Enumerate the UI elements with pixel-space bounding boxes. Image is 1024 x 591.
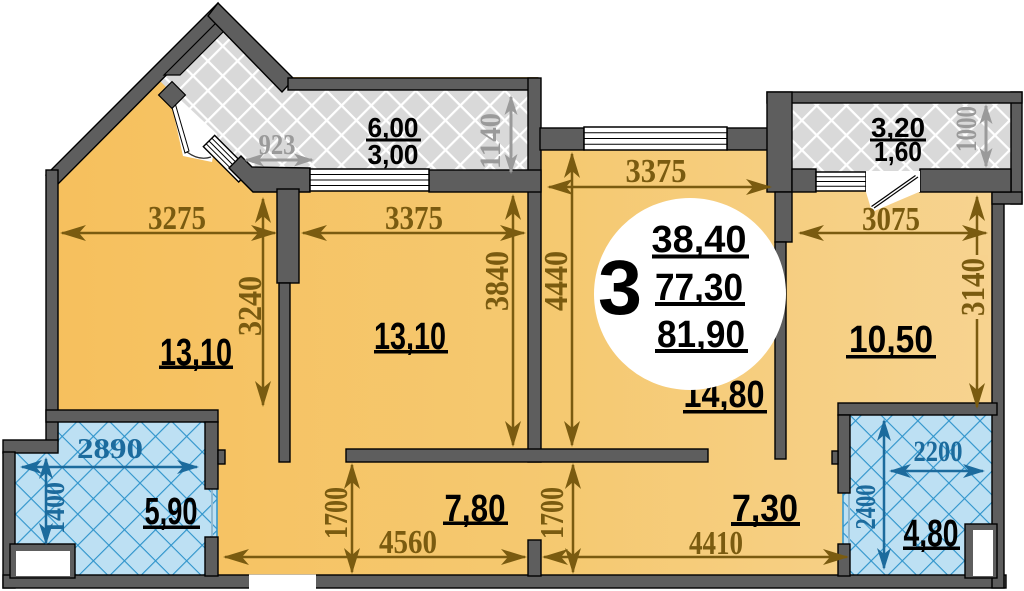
svg-text:3275: 3275 xyxy=(148,200,206,237)
svg-text:4560: 4560 xyxy=(379,524,437,561)
svg-text:1700: 1700 xyxy=(318,487,355,539)
svg-text:3: 3 xyxy=(598,245,642,331)
svg-text:3375: 3375 xyxy=(385,200,443,237)
svg-text:3840: 3840 xyxy=(479,251,516,311)
svg-text:1400: 1400 xyxy=(40,482,71,534)
svg-text:2400: 2400 xyxy=(851,485,882,530)
svg-text:1000: 1000 xyxy=(950,106,983,152)
svg-text:10,50: 10,50 xyxy=(849,319,933,361)
svg-text:3,00: 3,00 xyxy=(368,139,419,170)
svg-text:1,60: 1,60 xyxy=(874,136,922,167)
svg-text:1700: 1700 xyxy=(534,487,571,539)
svg-text:4440: 4440 xyxy=(538,251,575,311)
svg-text:3240: 3240 xyxy=(232,276,269,336)
svg-text:3140: 3140 xyxy=(955,258,992,316)
svg-text:923: 923 xyxy=(259,130,296,161)
svg-text:3375: 3375 xyxy=(626,153,687,190)
svg-text:4410: 4410 xyxy=(689,525,743,562)
svg-text:1140: 1140 xyxy=(474,113,507,169)
svg-text:3075: 3075 xyxy=(862,201,920,238)
svg-text:2890: 2890 xyxy=(77,434,143,465)
svg-text:2200: 2200 xyxy=(914,435,963,468)
